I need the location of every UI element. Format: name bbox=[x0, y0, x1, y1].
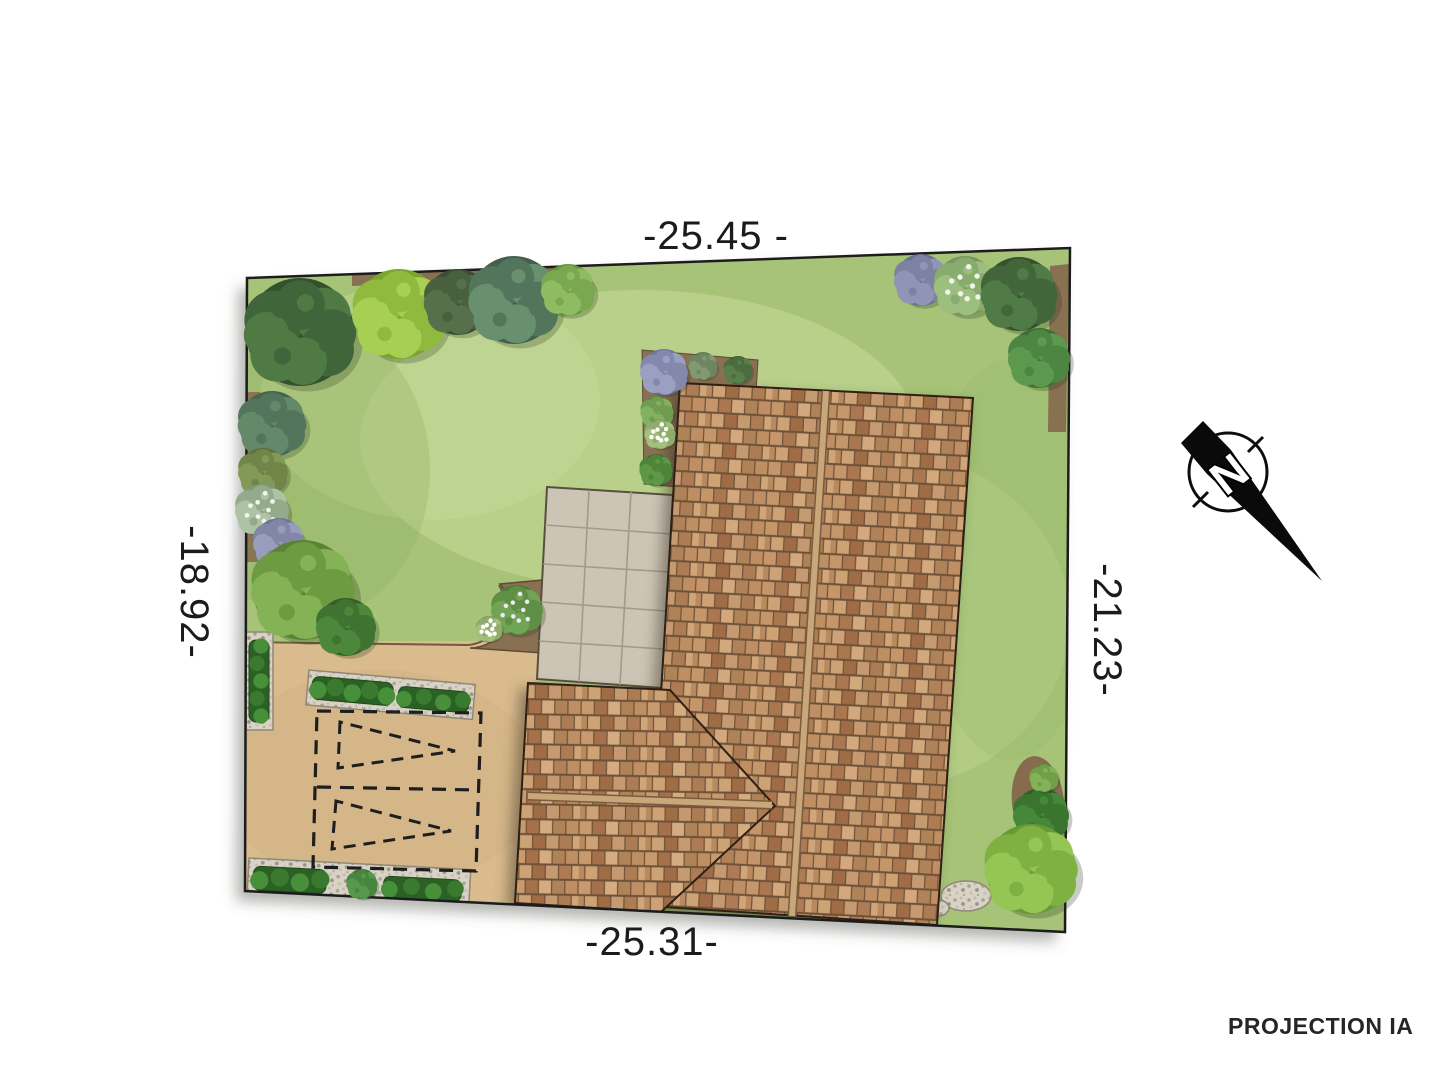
page: N -25.45 - -25.31- -18.92- -21.23- PROJE… bbox=[0, 0, 1440, 1080]
dimension-right: -21.23- bbox=[1085, 563, 1129, 697]
patio bbox=[537, 487, 673, 688]
hedge-left bbox=[249, 638, 269, 723]
hedge-bottom-a bbox=[250, 866, 330, 894]
site-plan: N -25.45 - -25.31- -18.92- -21.23- PROJE… bbox=[0, 0, 1440, 1080]
compass: N bbox=[1181, 421, 1322, 581]
dimension-bottom: -25.31- bbox=[585, 920, 719, 964]
dimension-top: -25.45 - bbox=[643, 214, 789, 258]
projection-label: PROJECTION IA bbox=[1228, 1013, 1413, 1039]
dimension-left: -18.92- bbox=[172, 525, 216, 659]
tree-lime-bottom-right bbox=[984, 824, 1083, 919]
